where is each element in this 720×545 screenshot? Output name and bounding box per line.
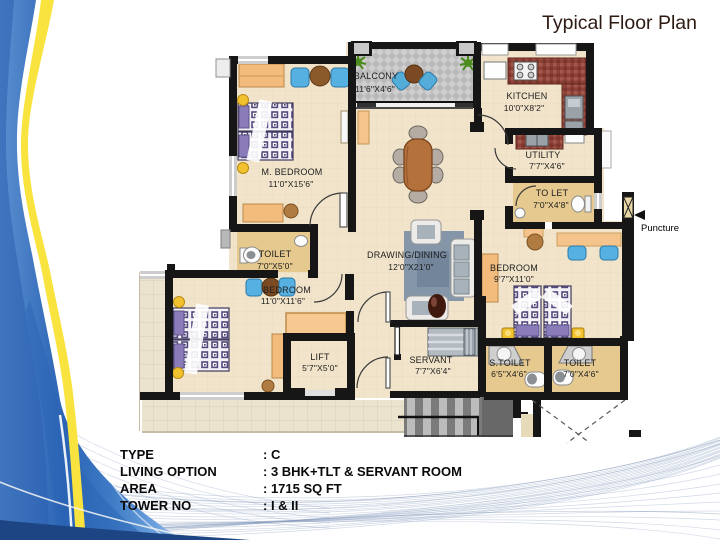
svg-text:: C: : C	[263, 447, 281, 462]
svg-text:: I & II: : I & II	[263, 498, 298, 513]
svg-text:BEDROOM: BEDROOM	[263, 285, 311, 295]
svg-text:Puncture: Puncture	[641, 223, 679, 234]
svg-text:11'0"X11'6": 11'0"X11'6"	[261, 296, 305, 306]
svg-text:11'6"X4'6": 11'6"X4'6"	[355, 84, 395, 94]
svg-text:S.TOILET: S.TOILET	[489, 358, 531, 368]
svg-text:TYPE: TYPE	[120, 447, 154, 462]
svg-text:7'0"X4'6": 7'0"X4'6"	[563, 369, 599, 379]
svg-text:TO LET: TO LET	[536, 188, 569, 198]
svg-text:6'5"X4'6": 6'5"X4'6"	[491, 369, 527, 379]
svg-text:11'0"X15'6": 11'0"X15'6"	[269, 179, 314, 189]
svg-text:7'0"X5'0": 7'0"X5'0"	[257, 261, 293, 271]
svg-text:9'7"X11'0": 9'7"X11'0"	[494, 274, 534, 284]
svg-text:: 3 BHK+TLT & SERVANT ROOM: : 3 BHK+TLT & SERVANT ROOM	[263, 464, 462, 479]
svg-text:: 1715 SQ FT: : 1715 SQ FT	[263, 481, 342, 496]
svg-text:7'7"X4'6": 7'7"X4'6"	[529, 161, 565, 171]
svg-text:LIVING OPTION: LIVING OPTION	[120, 464, 217, 479]
svg-text:7'0"X4'8": 7'0"X4'8"	[533, 200, 569, 210]
svg-text:TOILET: TOILET	[564, 358, 597, 368]
svg-text:SERVANT: SERVANT	[409, 355, 452, 365]
svg-text:BALCONY: BALCONY	[354, 71, 398, 81]
svg-text:12'0"X21'0": 12'0"X21'0"	[388, 262, 434, 272]
svg-text:10'0"X8'2": 10'0"X8'2"	[504, 103, 545, 113]
svg-text:7'7"X6'4": 7'7"X6'4"	[415, 366, 451, 376]
svg-text:5'7"X5'0": 5'7"X5'0"	[302, 363, 338, 373]
svg-text:DRAWING/DINING: DRAWING/DINING	[367, 250, 447, 260]
svg-text:TOILET: TOILET	[259, 249, 292, 259]
svg-text:AREA: AREA	[120, 481, 157, 496]
svg-text:Typical Floor Plan: Typical Floor Plan	[542, 12, 697, 34]
svg-text:M. BEDROOM: M. BEDROOM	[261, 167, 322, 177]
svg-text:LIFT: LIFT	[310, 352, 330, 362]
svg-text:TOWER NO: TOWER NO	[120, 498, 191, 513]
svg-text:BEDROOM: BEDROOM	[490, 263, 538, 273]
svg-text:UTILITY: UTILITY	[526, 150, 561, 160]
svg-text:KITCHEN: KITCHEN	[507, 91, 548, 101]
